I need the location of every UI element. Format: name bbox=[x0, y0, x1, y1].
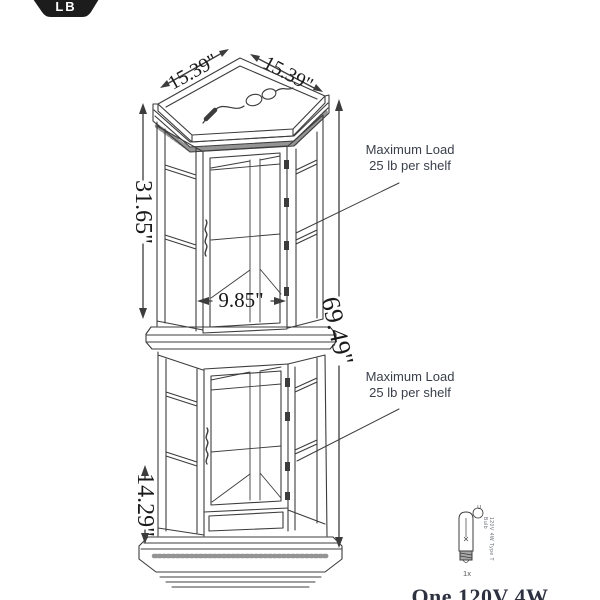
bulb-spec-text: 120V 4W Type T Bulb bbox=[482, 517, 494, 565]
lower-door-handle bbox=[206, 428, 208, 464]
weight-badge-label: LB bbox=[40, 0, 92, 14]
power-cord-coil bbox=[261, 87, 277, 100]
lower-interior-shelves bbox=[211, 367, 281, 502]
lower-right-glass-panel bbox=[288, 355, 327, 536]
middle-divider-molding bbox=[146, 327, 336, 349]
max-load-line1: Maximum Load bbox=[358, 369, 462, 385]
dimension-inner-width: 9.85" bbox=[203, 290, 279, 311]
base-plinth bbox=[139, 537, 342, 587]
bulb-cert-mark: U bbox=[474, 505, 484, 511]
dimension-base-height: 14.29" bbox=[133, 460, 157, 550]
bulb-caption: One 120V 4W bbox=[395, 584, 565, 600]
bulb-quantity: 1x bbox=[455, 569, 479, 578]
lower-left-glass-panel bbox=[158, 352, 204, 536]
max-load-annotation-lower: Maximum Load 25 lb per shelf bbox=[358, 369, 462, 402]
lower-door bbox=[204, 364, 288, 512]
max-load-line2: 25 lb per shelf bbox=[358, 158, 462, 174]
product-dimension-diagram: LB 15.39" 15.39" 31.65" 9.85" 69.49" 14.… bbox=[0, 0, 600, 600]
power-cord-plug bbox=[206, 110, 215, 119]
lower-front-panel bbox=[204, 508, 288, 536]
max-load-annotation-upper: Maximum Load 25 lb per shelf bbox=[358, 142, 462, 175]
power-cord bbox=[203, 88, 293, 123]
max-load-line2: 25 lb per shelf bbox=[358, 385, 462, 401]
upper-left-glass-panel bbox=[157, 122, 203, 331]
dimension-upper-section-height: 31.65" bbox=[131, 167, 155, 257]
max-load-line1: Maximum Load bbox=[358, 142, 462, 158]
upper-door-handle bbox=[205, 220, 207, 256]
power-cord-coil bbox=[245, 93, 263, 108]
